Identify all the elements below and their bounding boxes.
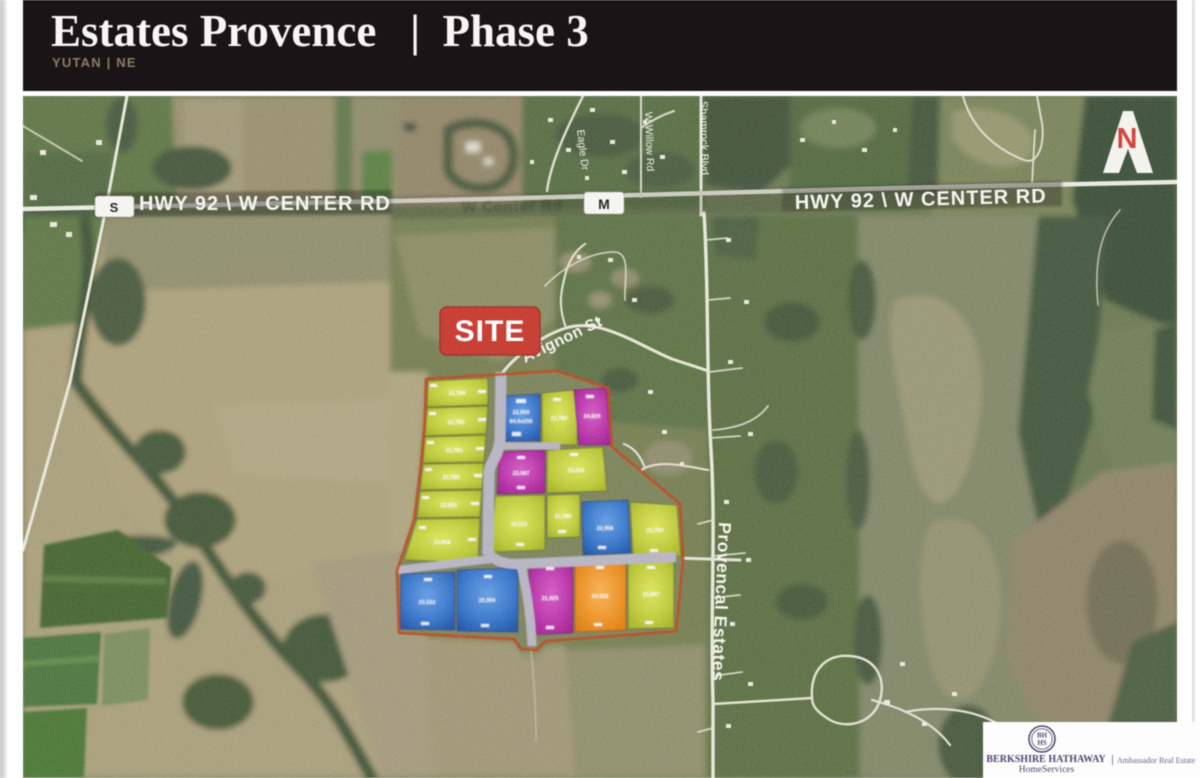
svg-text:HS: HS (1037, 739, 1046, 747)
